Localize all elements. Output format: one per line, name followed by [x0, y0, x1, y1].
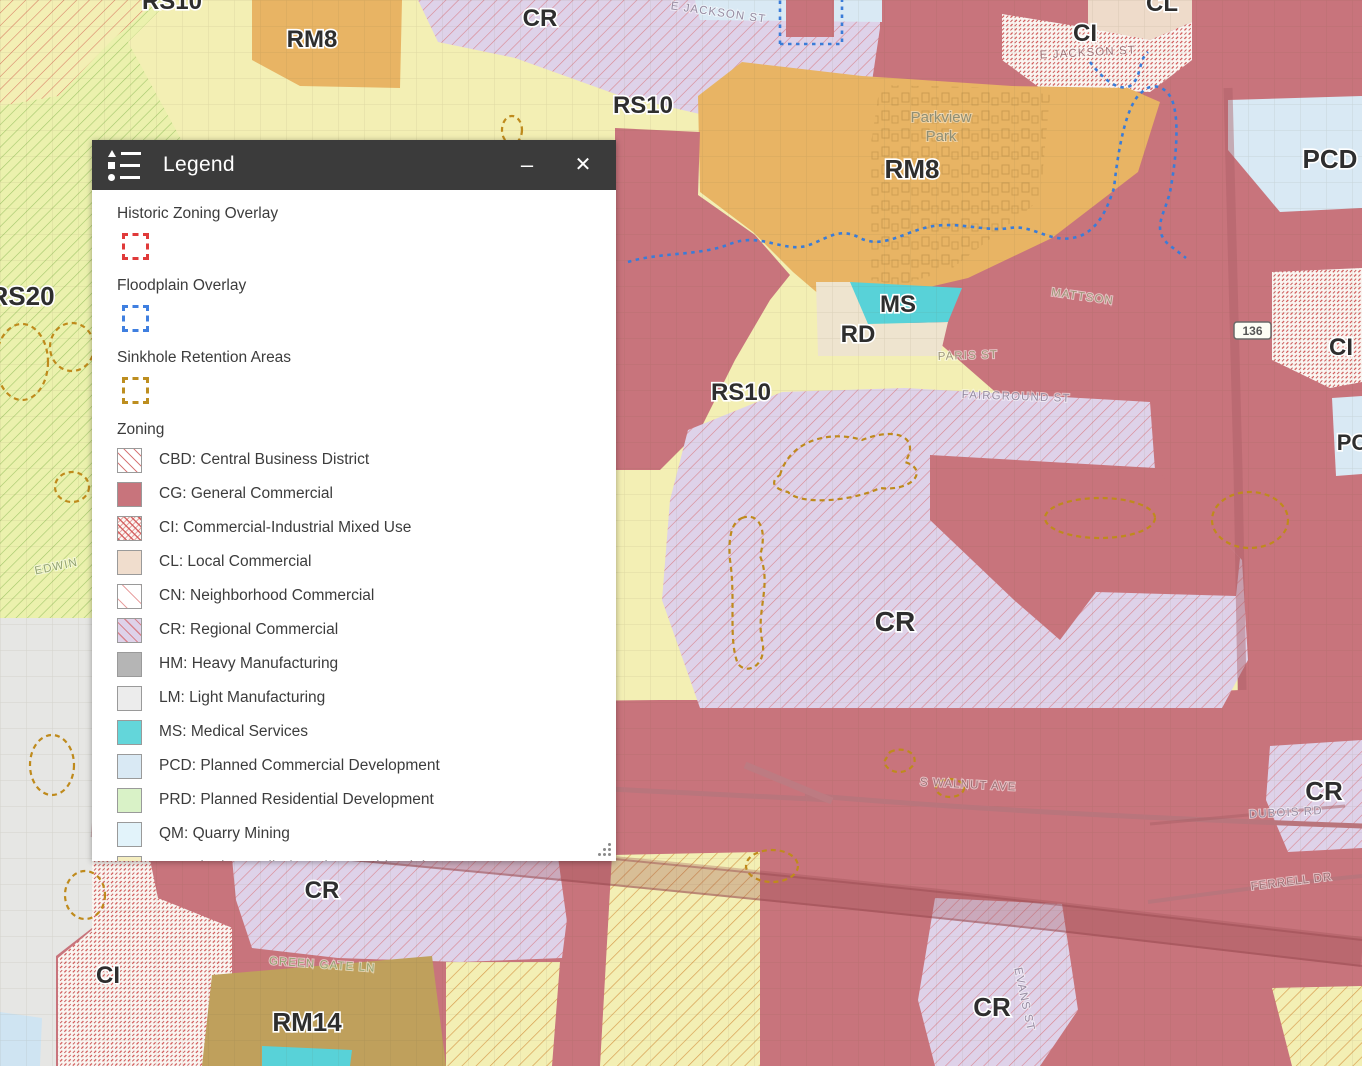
- swatch-qm: [117, 822, 142, 847]
- zone-label: RS10: [142, 0, 202, 15]
- overlay-layer-name: Sinkhole Retention Areas: [117, 348, 606, 367]
- panel-resize-handle[interactable]: [597, 842, 611, 856]
- swatch-pcd: [117, 754, 142, 779]
- minimize-button[interactable]: –: [510, 140, 544, 190]
- legend-item-label: RD: Single Family / Duplex Residential: [159, 859, 425, 861]
- overlay-layer-name: Historic Zoning Overlay: [117, 204, 606, 223]
- legend-item-hm: HM: Heavy Manufacturing: [117, 647, 606, 681]
- swatch-ci: [117, 516, 142, 541]
- zone-label: CR: [523, 5, 558, 32]
- zone-label: CI: [1073, 20, 1097, 47]
- zone-label: CL: [1146, 0, 1178, 17]
- legend-body: Historic Zoning Overlay Floodplain Overl…: [92, 190, 616, 861]
- legend-icon: [108, 150, 141, 181]
- zone-label: PCD: [1303, 144, 1358, 174]
- zone-label: CI: [96, 962, 120, 989]
- zone-label: CR: [875, 606, 915, 637]
- legend-item-cg: CG: General Commercial: [117, 477, 606, 511]
- swatch-ms: [117, 720, 142, 745]
- zone-label: RS20: [0, 281, 55, 311]
- legend-item-qm: QM: Quarry Mining: [117, 817, 606, 851]
- swatch-cl: [117, 550, 142, 575]
- floodplain-overlay-swatch: [122, 305, 149, 332]
- swatch-cr: [117, 618, 142, 643]
- close-button[interactable]: ✕: [566, 140, 600, 190]
- app-window: E JACKSON ST E JACKSON ST PARIS ST MATTS…: [0, 0, 1362, 1066]
- legend-item-label: PRD: Planned Residential Development: [159, 791, 434, 809]
- zone-label: RD: [841, 321, 876, 348]
- swatch-cn: [117, 584, 142, 609]
- legend-item-label: CR: Regional Commercial: [159, 621, 338, 639]
- legend-item-cr: CR: Regional Commercial: [117, 613, 606, 647]
- zoning-section-title: Zoning: [117, 420, 606, 439]
- legend-item-label: PCD: Planned Commercial Development: [159, 757, 440, 775]
- zone-label: RM8: [287, 26, 338, 53]
- legend-item-label: CI: Commercial-Industrial Mixed Use: [159, 519, 411, 537]
- legend-item-label: MS: Medical Services: [159, 723, 308, 741]
- legend-section-sinkhole: Sinkhole Retention Areas: [117, 348, 606, 404]
- legend-item-rd: RD: Single Family / Duplex Residential: [117, 851, 606, 861]
- swatch-prd: [117, 788, 142, 813]
- legend-item-label: CG: General Commercial: [159, 485, 333, 503]
- legend-item-label: QM: Quarry Mining: [159, 825, 290, 843]
- historic-overlay-swatch: [122, 233, 149, 260]
- zone-label: CI: [1329, 334, 1353, 361]
- legend-item-label: HM: Heavy Manufacturing: [159, 655, 338, 673]
- zone-label: RM8: [885, 154, 940, 184]
- legend-item-prd: PRD: Planned Residential Development: [117, 783, 606, 817]
- legend-item-label: CL: Local Commercial: [159, 553, 311, 571]
- zone-label: CR: [305, 877, 340, 904]
- legend-item-cn: CN: Neighborhood Commercial: [117, 579, 606, 613]
- legend-item-label: LM: Light Manufacturing: [159, 689, 325, 707]
- legend-item-lm: LM: Light Manufacturing: [117, 681, 606, 715]
- legend-item-ms: MS: Medical Services: [117, 715, 606, 749]
- legend-item-ci: CI: Commercial-Industrial Mixed Use: [117, 511, 606, 545]
- legend-item-label: CN: Neighborhood Commercial: [159, 587, 374, 605]
- legend-item-pcd: PCD: Planned Commercial Development: [117, 749, 606, 783]
- overlay-layer-name: Floodplain Overlay: [117, 276, 606, 295]
- legend-panel-title: Legend: [163, 153, 488, 177]
- legend-panel-header[interactable]: Legend – ✕: [92, 140, 616, 190]
- zone-label: RS10: [613, 92, 673, 119]
- zone-label: PC: [1337, 430, 1362, 455]
- zone-label: MS: [880, 291, 916, 318]
- route-shield-136-text: 136: [1242, 324, 1262, 338]
- swatch-cg: [117, 482, 142, 507]
- legend-section-historic: Historic Zoning Overlay: [117, 204, 606, 260]
- sinkhole-overlay-swatch: [122, 377, 149, 404]
- swatch-cbd: [117, 448, 142, 473]
- street-label: PARIS ST: [938, 349, 999, 363]
- park-label-line1: Parkview: [911, 109, 972, 126]
- park-label-line2: Park: [926, 128, 957, 145]
- legend-item-cl: CL: Local Commercial: [117, 545, 606, 579]
- legend-panel: Legend – ✕ Historic Zoning Overlay Flood…: [92, 140, 616, 861]
- swatch-lm: [117, 686, 142, 711]
- legend-section-floodplain: Floodplain Overlay: [117, 276, 606, 332]
- swatch-hm: [117, 652, 142, 677]
- zone-label: RS10: [711, 379, 771, 406]
- legend-item-cbd: CBD: Central Business District: [117, 443, 606, 477]
- legend-item-label: CBD: Central Business District: [159, 451, 369, 469]
- zone-label: CR: [973, 992, 1011, 1022]
- zone-label: CR: [1305, 776, 1343, 806]
- zone-label: RM14: [272, 1007, 342, 1037]
- route-shield-136: 136: [1234, 322, 1271, 339]
- swatch-rd: [117, 856, 142, 862]
